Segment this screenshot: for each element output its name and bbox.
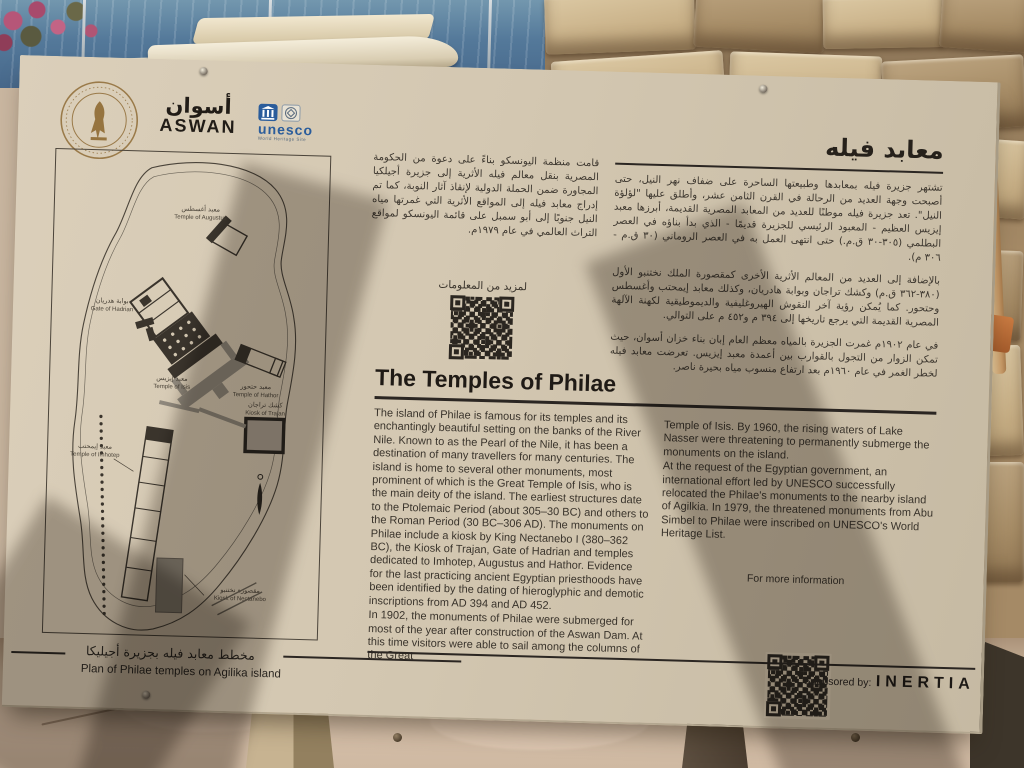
photo-scene: أسوان ASWAN unesco World Heritage Site م… (0, 0, 1024, 768)
map-label-hathor-ar: معبد حتحور (239, 382, 271, 391)
aswan-logo-latin: ASWAN (150, 116, 246, 137)
english-paragraph-4: At the request of the Egyptian governmen… (661, 460, 935, 548)
map-label-trajan-ar: كشك تراجان (248, 401, 284, 410)
map-label-isis-ar: معبد إيزيس (156, 374, 188, 383)
english-paragraph-2: In 1902, the monuments of Philae were su… (367, 609, 645, 670)
arabic-paragraph-4: قامت منظمة اليونسكو بناءً على دعوة من ال… (371, 151, 599, 241)
mounting-bolt (200, 67, 208, 75)
map-structure-hathor (235, 345, 286, 378)
north-arrow-icon (257, 474, 263, 515)
unesco-temple-icon (258, 104, 277, 122)
map-caption-english: Plan of Philae temples on Agilika island (31, 662, 331, 682)
more-info-label-arabic: لمزيد من المعلومات (370, 277, 596, 295)
map-label-hadrian-ar: بوابة هدريان (96, 296, 129, 305)
qr-code-arabic (449, 295, 515, 361)
inertia-logo: INERTIA (876, 673, 975, 693)
world-heritage-emblem-icon (282, 104, 301, 122)
map-label-isis-en: Temple of Isis (153, 384, 190, 391)
map-caption-arabic: مخطط معابد فيله بجزيرة أجيليكا (61, 642, 279, 663)
mounting-bolt (142, 691, 150, 699)
anchor-bolt (393, 733, 402, 742)
map-label-imhotep-ar: معبد إيمحتب (78, 442, 112, 451)
sign-support-post-left (246, 710, 334, 768)
aswan-logo: أسوان ASWAN (150, 95, 247, 137)
unesco-tagline: World Heritage Site (258, 136, 328, 143)
map-label-hathor-en: Temple of Hathor (233, 392, 279, 399)
mounting-bolt (759, 85, 767, 93)
map-frame: معبد أغسطس Temple of Augustus بوابة هدري… (42, 148, 331, 641)
english-paragraph-3: Temple of Isis. By 1960, the rising wate… (663, 419, 936, 467)
map-structure-nectanebo (156, 558, 183, 613)
more-info-label-english: For more information (660, 570, 932, 590)
arabic-section: معابد فيله تشتهر جزيرة فيله بمعابدها وطب… (609, 128, 944, 382)
caption-dash-left (11, 651, 65, 655)
anchor-bolt (851, 733, 860, 742)
map-label-nectanebo-ar: مقصورة نختنبو (219, 586, 260, 595)
philae-map: معبد أغسطس Temple of Augustus بوابة هدري… (43, 149, 328, 637)
unesco-logo: unesco World Heritage Site (258, 104, 329, 143)
map-label-nectanebo-en: Kiosk of Nectanebo (214, 596, 267, 603)
information-sign-panel: أسوان ASWAN unesco World Heritage Site م… (2, 55, 1001, 734)
map-label-imhotep-en: Temple of Imhotep (70, 452, 120, 459)
map-label-trajan-en: Kiosk of Trajan (245, 410, 285, 417)
map-label-augustus-en: Temple of Augustus (174, 214, 227, 221)
arabic-paragraph-1: تشتهر جزيرة فيله بمعابدها وطبيعتها الساح… (613, 173, 943, 266)
english-column-1: The island of Philae is famous for its t… (367, 407, 651, 671)
english-column-2: Temple of Isis. By 1960, the rising wate… (661, 419, 936, 549)
arabic-title: معابد فيله (615, 128, 944, 166)
arabic-paragraph-2: بالإضافة إلى العديد من المعالم الأثرية ا… (611, 266, 940, 331)
map-label-augustus-ar: معبد أغسطس (181, 204, 220, 214)
english-paragraph-1: The island of Philae is famous for its t… (369, 407, 652, 616)
map-structure-trajan (245, 418, 284, 452)
sponsored-by-label: Sponsored by: (803, 675, 871, 689)
map-label-hadrian-en: Gate of Hadrian (91, 306, 134, 313)
